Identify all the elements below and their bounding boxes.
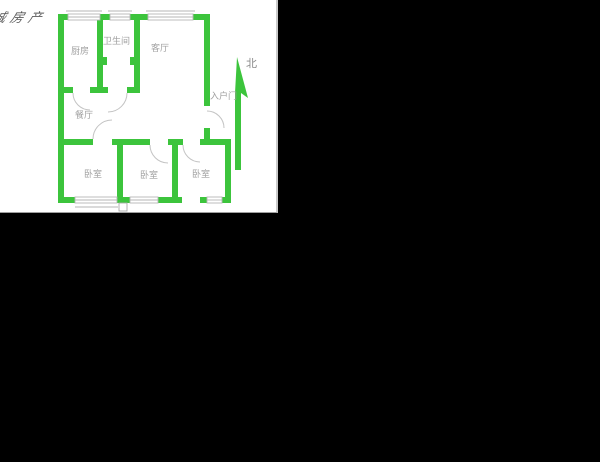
bedroom-middle-label: 卧室 — [140, 170, 158, 180]
door-arc-entrance — [207, 111, 224, 128]
watermark-text: 诚房产 — [0, 7, 50, 26]
wall-bath-tab-left — [103, 57, 107, 65]
wall-kitchen-bottom-1 — [58, 87, 73, 93]
door-arc-bedroom-middle — [150, 145, 168, 163]
wall-hall-3 — [168, 139, 183, 145]
pillar-stub — [119, 203, 127, 211]
wall-bottom-5 — [222, 197, 231, 203]
wall-bath-living-divider — [134, 14, 140, 93]
dining-room-label: 餐厅 — [75, 110, 93, 120]
north-label: 北 — [246, 59, 257, 69]
wall-kitchen-bath-divider — [97, 14, 103, 93]
wall-kitchen-bottom-3 — [127, 87, 140, 93]
living-room-label: 客厅 — [151, 43, 169, 53]
bedroom-right-label: 卧室 — [192, 169, 210, 179]
wall-bottom-4 — [200, 197, 207, 203]
wall-bottom-3 — [158, 197, 182, 203]
entrance-door-label: 入户门 — [210, 91, 237, 101]
wall-hall-1 — [58, 139, 93, 145]
wall-hall-4 — [200, 139, 231, 145]
north-arrow-icon — [235, 57, 248, 170]
bedroom-left-label: 卧室 — [84, 169, 102, 179]
floorplan-drawing — [0, 0, 276, 212]
wall-bedroom-divider-1 — [117, 145, 123, 197]
floorplan-image: 厨房 卫生间 客厅 餐厅 入户门 卧室 卧室 卧室 北 诚房产 — [0, 0, 278, 213]
wall-bath-tab-right — [130, 57, 134, 65]
wall-kitchen-bottom-2 — [90, 87, 108, 93]
wall-bedroom-divider-2 — [172, 145, 178, 197]
wall-bottom-1 — [58, 197, 75, 203]
bathroom-label: 卫生间 — [103, 36, 130, 46]
wall-left — [58, 14, 64, 203]
door-arc-bedroom-left — [93, 120, 112, 139]
door-arc-bathroom — [108, 93, 127, 112]
door-arc-bedroom-right — [183, 145, 200, 162]
wall-hall-2 — [112, 139, 150, 145]
kitchen-label: 厨房 — [71, 46, 89, 56]
image-viewer-canvas: 厨房 卫生间 客厅 餐厅 入户门 卧室 卧室 卧室 北 诚房产 — [0, 0, 600, 462]
door-arc-kitchen — [73, 93, 90, 110]
wall-right-lower — [225, 145, 231, 203]
wall-bottom-2 — [117, 197, 130, 203]
